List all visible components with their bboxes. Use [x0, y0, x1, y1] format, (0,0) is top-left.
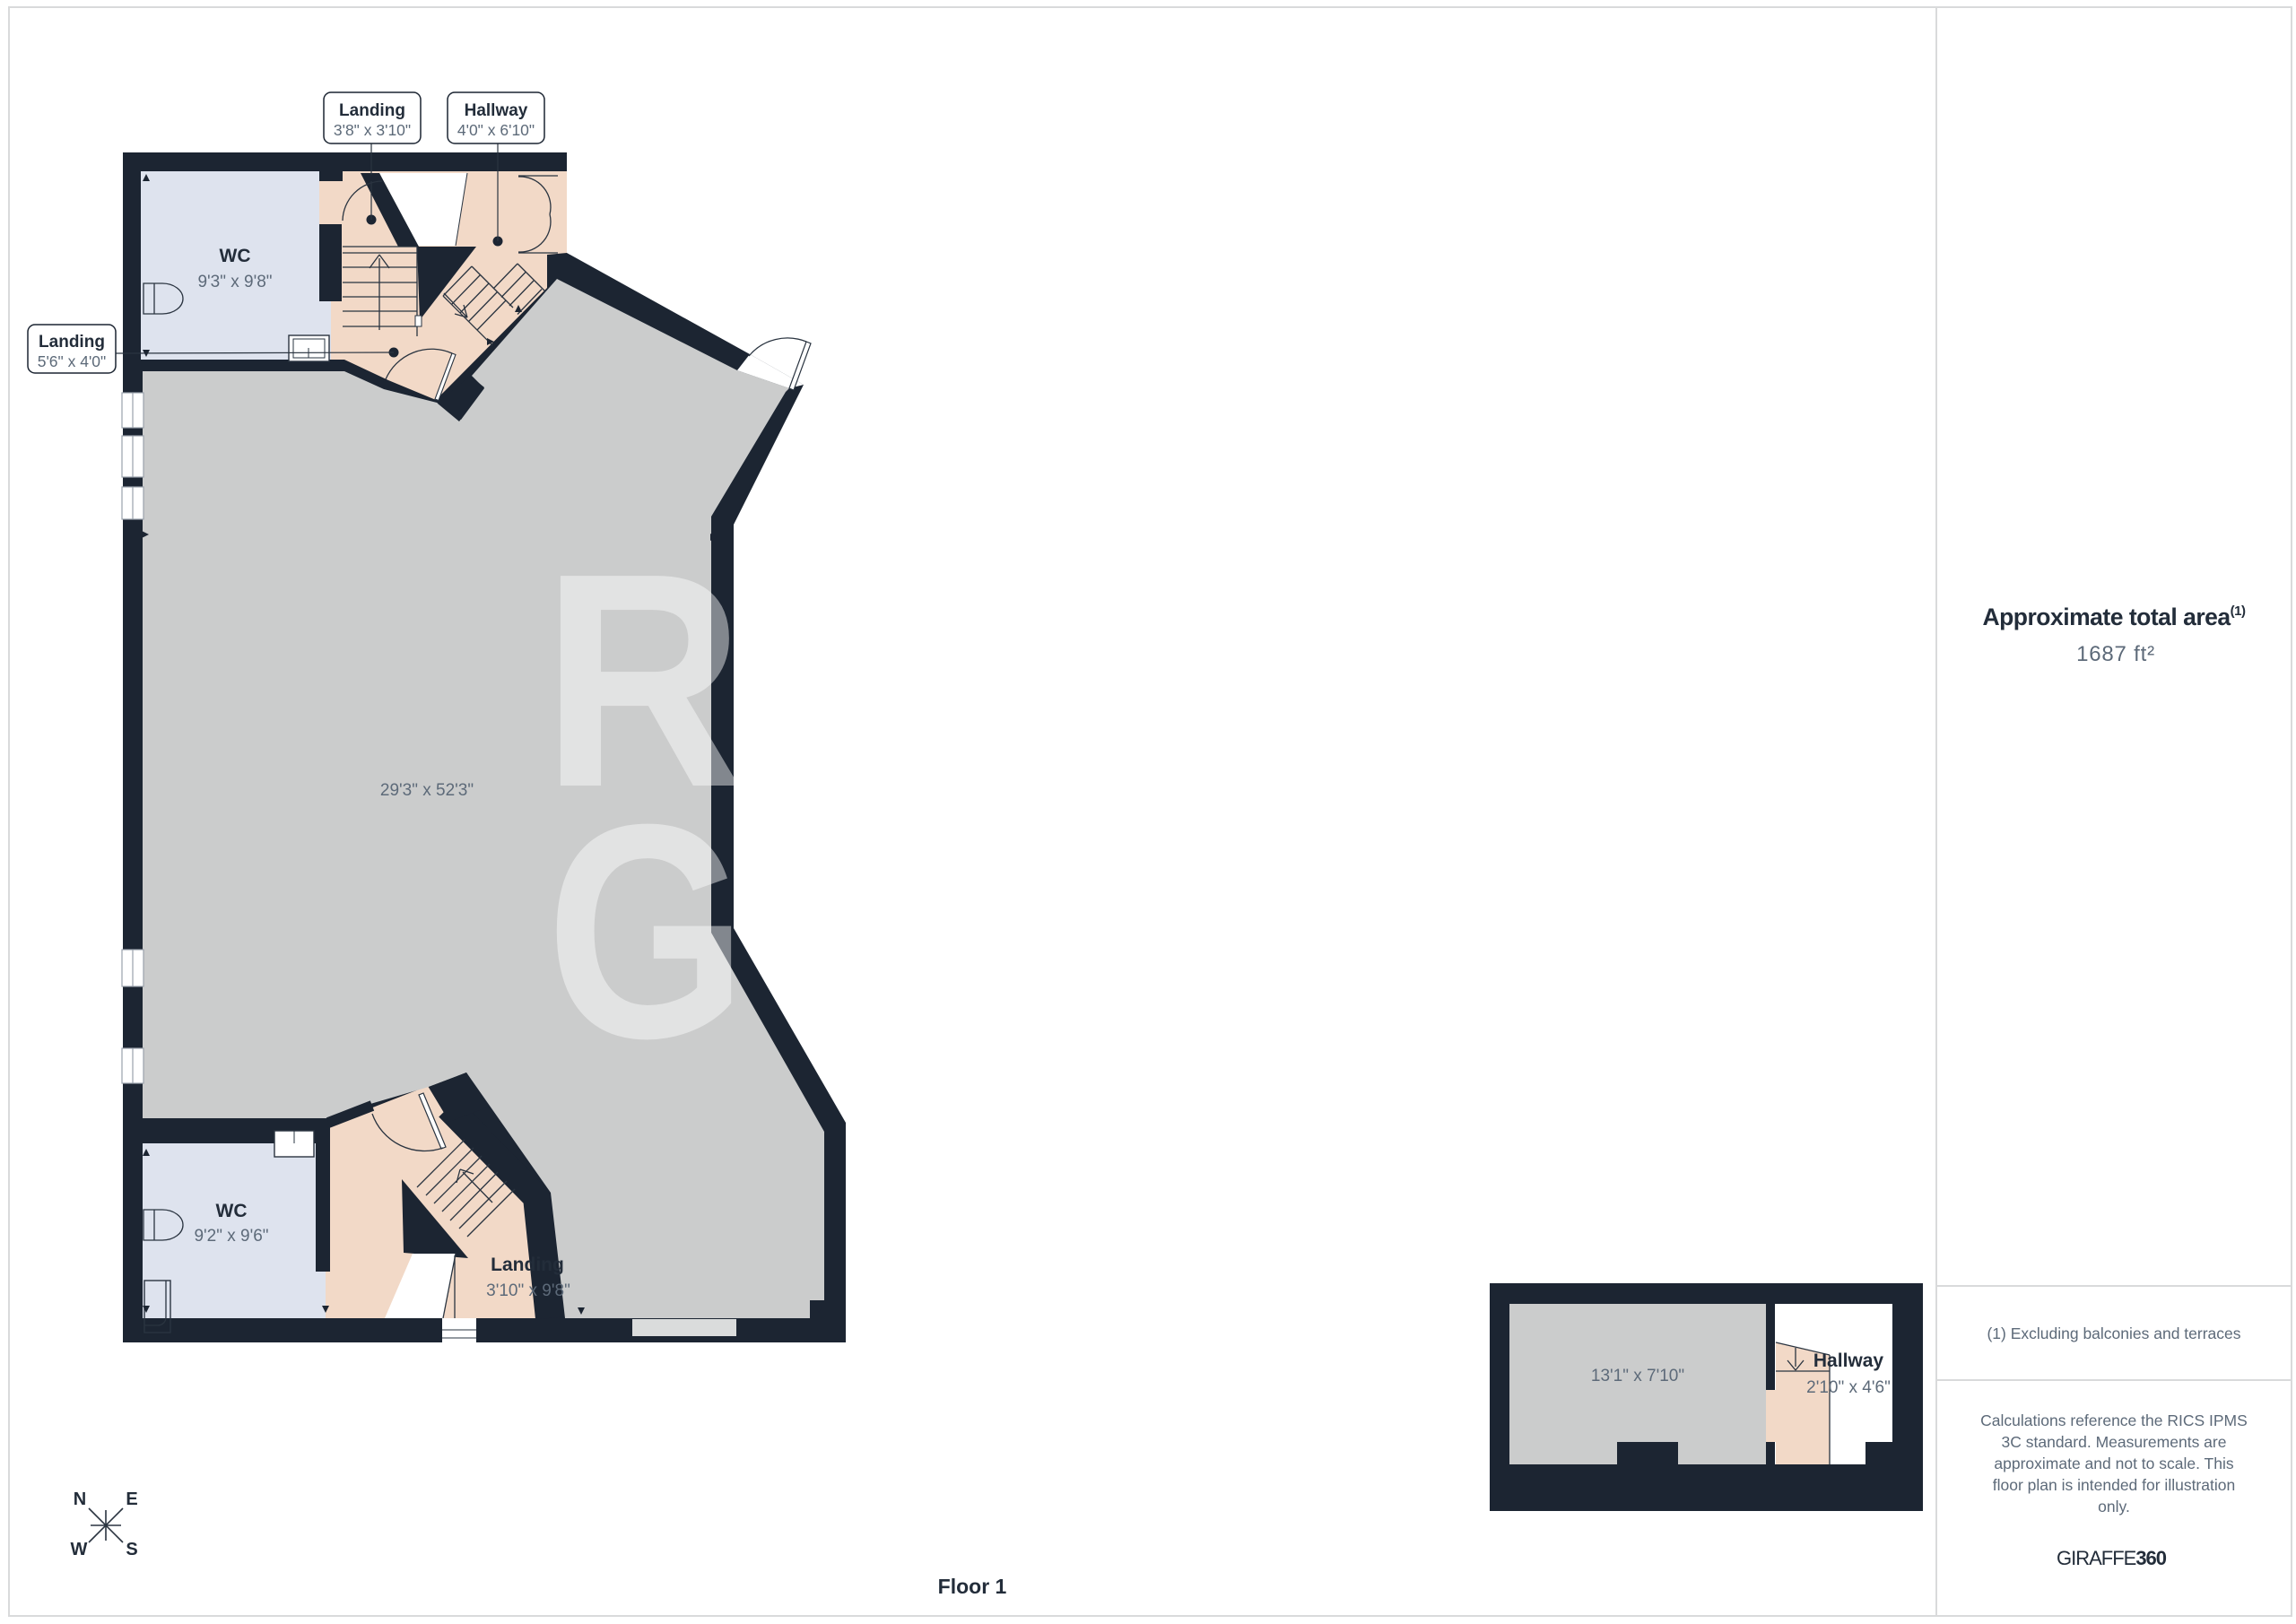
svg-text:S: S: [126, 1540, 137, 1559]
svg-text:Landing: Landing: [491, 1255, 564, 1275]
svg-text:9'3" x 9'8": 9'3" x 9'8": [197, 273, 272, 291]
svg-text:N: N: [74, 1489, 86, 1509]
svg-text:2'10" x 4'6": 2'10" x 4'6": [1806, 1378, 1891, 1397]
svg-text:Landing: Landing: [39, 333, 105, 352]
svg-text:WC: WC: [216, 1201, 248, 1221]
svg-text:3C standard. Measurements are: 3C standard. Measurements are: [2002, 1433, 2227, 1451]
svg-text:5'6" x 4'0": 5'6" x 4'0": [38, 352, 107, 370]
svg-text:4'0" x 6'10": 4'0" x 6'10": [457, 121, 535, 139]
svg-text:9'2" x 9'6": 9'2" x 9'6": [194, 1227, 268, 1246]
svg-text:Floor 1: Floor 1: [938, 1575, 1007, 1598]
svg-text:E: E: [126, 1489, 137, 1509]
svg-text:29'3" x 52'3": 29'3" x 52'3": [380, 781, 474, 800]
svg-text:3'10" x 9'8": 3'10" x 9'8": [486, 1281, 570, 1300]
svg-text:GIRAFFE360: GIRAFFE360: [2057, 1547, 2167, 1569]
svg-text:Hallway: Hallway: [465, 101, 528, 120]
svg-text:Hallway: Hallway: [1813, 1350, 1884, 1371]
svg-text:WC: WC: [220, 246, 251, 266]
svg-text:3'8" x 3'10": 3'8" x 3'10": [334, 121, 411, 139]
svg-text:W: W: [71, 1540, 88, 1559]
svg-text:13'1" x 7'10": 13'1" x 7'10": [1591, 1367, 1684, 1385]
svg-text:Landing: Landing: [339, 101, 405, 120]
svg-text:only.: only.: [2098, 1498, 2130, 1515]
svg-text:G: G: [546, 761, 747, 1102]
svg-text:Approximate total area(1): Approximate total area(1): [1982, 604, 2246, 630]
svg-text:Calculations reference the RIC: Calculations reference the RICS IPMS: [1980, 1411, 2248, 1429]
svg-text:approximate and not to scale.: approximate and not to scale. This: [1994, 1455, 2233, 1472]
svg-text:1687 ft²: 1687 ft²: [2076, 642, 2155, 666]
svg-text:(1) Excluding balconies and te: (1) Excluding balconies and terraces: [1987, 1324, 2240, 1342]
svg-text:floor plan is intended for ill: floor plan is intended for illustration: [1993, 1476, 2235, 1494]
